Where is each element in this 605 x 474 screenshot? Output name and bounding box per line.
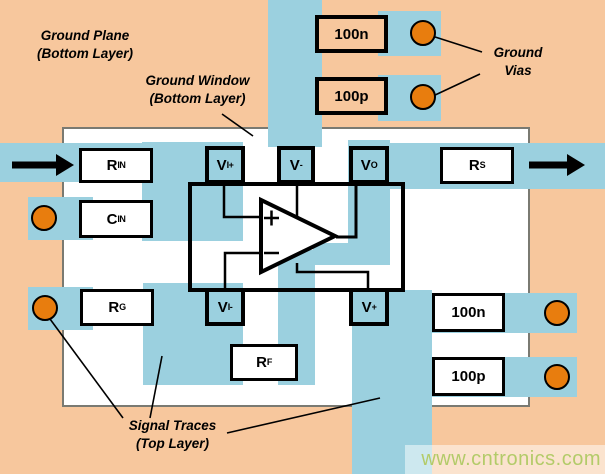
pad-label-sub: + xyxy=(372,303,377,312)
pad-v-in-plus: VI+ xyxy=(205,146,245,184)
pad-v-in-minus: VI- xyxy=(205,288,245,326)
signal-traces-label: Signal Traces (Top Layer) xyxy=(110,417,235,452)
label-line: (Top Layer) xyxy=(110,435,235,453)
pad-v-out: VO xyxy=(349,146,389,184)
pad-label-sub: I+ xyxy=(227,161,234,170)
component-label: C xyxy=(107,211,118,228)
component-label: R xyxy=(107,157,118,174)
component-label: R xyxy=(108,299,119,316)
capacitor-100p-top: 100p xyxy=(315,77,388,115)
ground-via-rg xyxy=(32,295,58,321)
pad-label: V xyxy=(290,157,300,174)
pad-label-sub: I- xyxy=(228,303,233,312)
capacitor-100p-bottom: 100p xyxy=(432,357,505,396)
component-label: 100n xyxy=(451,304,485,321)
component-label: R xyxy=(256,354,267,371)
label-line: Vias xyxy=(478,62,558,80)
ground-via-right-1 xyxy=(544,300,570,326)
trace-vneg-supply-vertical xyxy=(268,0,322,147)
pad-label-sub: O xyxy=(371,161,378,170)
capacitor-cin: CIN xyxy=(79,200,153,238)
pcb-layout-diagram: VI+ V- VO VI- V+ 100n 100p RIN CIN RG RF… xyxy=(0,0,605,474)
component-label-sub: G xyxy=(119,303,126,312)
ground-via-top-1 xyxy=(410,20,436,46)
component-label: 100p xyxy=(451,368,485,385)
capacitor-100n-top: 100n xyxy=(315,15,388,53)
label-line: Ground Window xyxy=(130,72,265,90)
ground-via-cin xyxy=(31,205,57,231)
label-line: Signal Traces xyxy=(110,417,235,435)
label-line: (Bottom Layer) xyxy=(130,90,265,108)
label-line: (Bottom Layer) xyxy=(20,45,150,63)
ground-via-right-2 xyxy=(544,364,570,390)
component-label: R xyxy=(469,157,480,174)
component-label-sub: F xyxy=(267,358,272,367)
watermark-band: www.cntronics.com xyxy=(405,445,605,474)
pad-label: V xyxy=(361,157,371,174)
pad-label: V xyxy=(362,299,372,316)
pad-v-plus: V+ xyxy=(349,288,389,326)
opamp-ic-body xyxy=(188,182,405,292)
component-label-sub: S xyxy=(480,161,486,170)
resistor-rf: RF xyxy=(230,344,298,381)
pad-label-sub: - xyxy=(300,161,303,170)
label-line: Ground xyxy=(478,44,558,62)
component-label-sub: IN xyxy=(117,161,125,170)
component-label-sub: IN xyxy=(117,215,125,224)
resistor-rin: RIN xyxy=(79,148,153,183)
pad-label: V xyxy=(217,157,227,174)
resistor-rg: RG xyxy=(80,289,154,326)
watermark-text: www.cntronics.com xyxy=(421,448,605,471)
label-line: Ground Plane xyxy=(20,27,150,45)
capacitor-100n-bottom: 100n xyxy=(432,293,505,332)
ground-vias-label: Ground Vias xyxy=(478,44,558,79)
ground-window-label: Ground Window (Bottom Layer) xyxy=(130,72,265,107)
component-label: 100p xyxy=(334,88,368,105)
component-label: 100n xyxy=(334,26,368,43)
ground-plane-label: Ground Plane (Bottom Layer) xyxy=(20,27,150,62)
resistor-rs: RS xyxy=(440,147,514,184)
pad-label: V xyxy=(218,299,228,316)
pad-v-minus: V- xyxy=(277,146,315,184)
ground-via-top-2 xyxy=(410,84,436,110)
